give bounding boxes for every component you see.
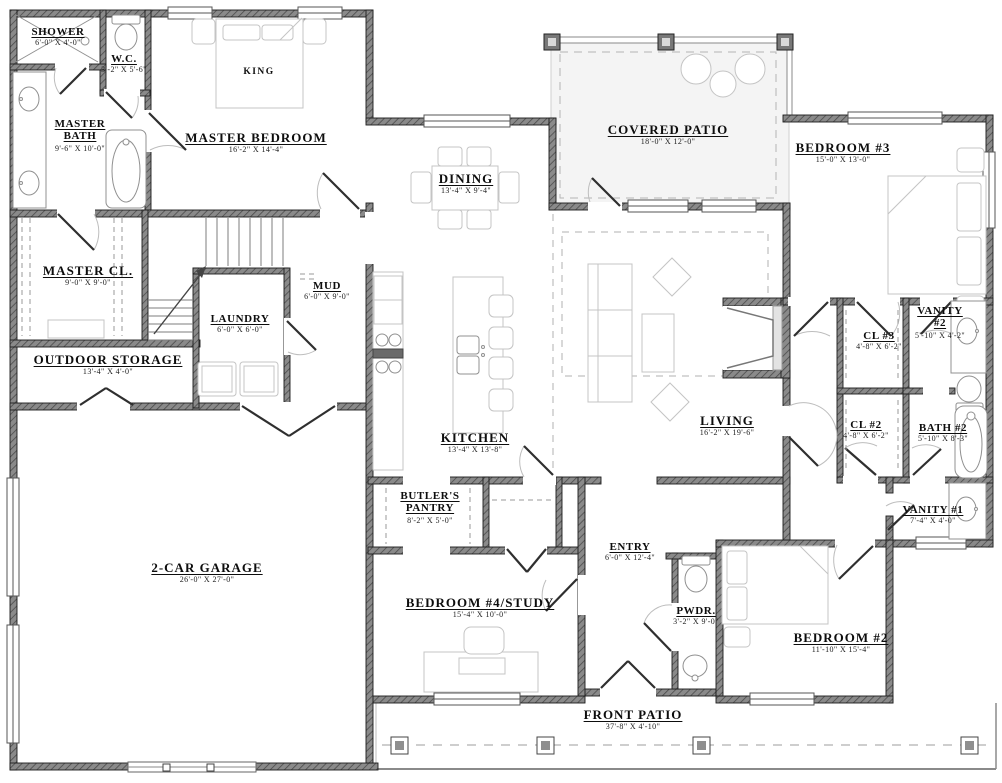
room-label-master-bath: MASTER BATH 9'-6" X 10'-0" (49, 118, 111, 153)
room-label-garage: 2-CAR GARAGE 26'-0" X 27'-0" (151, 561, 262, 585)
wc-toilet (112, 15, 140, 50)
room-label-front-patio: FRONT PATIO 37'-8" X 4'-10" (584, 708, 683, 732)
pwdr-sink (683, 655, 707, 681)
room-label-butlers-pantry: BUTLER'S PANTRY 8'-2" X 5'-0" (397, 490, 463, 525)
room-label-wc: W.C. 3'-2" X 5'-6" (101, 53, 147, 75)
room-label-shower: SHOWER 6'-0" X 4'-0" (31, 26, 84, 48)
master-tub (106, 130, 146, 208)
pwdr-toilet (682, 556, 710, 592)
room-label-covered-patio: COVERED PATIO 18'-0" X 12'-0" (608, 123, 729, 147)
living-furniture (588, 258, 691, 421)
garage-door (128, 762, 256, 772)
laundry-appliances (198, 362, 278, 396)
room-label-pwdr: PWDR. 3'-2" X 9'-0" (673, 605, 719, 627)
king-bed (192, 18, 326, 108)
room-label-bedroom-4: BEDROOM #4/STUDY 15'-4" X 10'-0" (406, 596, 555, 620)
room-label-cl-2: CL #2 4'-8" X 6'-2" (843, 419, 889, 441)
master-closet-island (48, 320, 104, 338)
room-label-master-bedroom: MASTER BEDROOM 16'-2" X 14'-4" (185, 131, 326, 155)
room-label-outdoor-storage: OUTDOOR STORAGE 13'-4" X 4'-0" (34, 353, 183, 377)
room-label-laundry: LAUNDRY 6'-0" X 6'-0" (211, 313, 270, 335)
room-label-vanity-1: VANITY #1 7'-4" X 4'-0" (903, 504, 964, 526)
room-label-vanity-2: VANITY #2 5'-10" X 4'-2" (914, 305, 966, 340)
fireplace (723, 306, 782, 370)
floor-plan-drawing (0, 0, 1002, 783)
floor-plan: SHOWER 6'-0" X 4'-0" W.C. 3'-2" X 5'-6" … (0, 0, 1002, 783)
bedroom4-desk (424, 627, 538, 692)
room-label-bath-2: BATH #2 5'-10" X 8'-3" (918, 422, 968, 444)
king-bed-label: KING (243, 67, 274, 77)
room-label-cl-3: CL #3 4'-8" X 6'-2" (856, 330, 902, 352)
master-vanity (13, 72, 46, 208)
room-label-bedroom-3: BEDROOM #3 15'-0" X 13'-0" (796, 141, 891, 165)
room-label-entry: ENTRY 6'-0" X 12'-4" (605, 541, 655, 563)
room-label-master-cl: MASTER CL. 9'-0" X 9'-0" (43, 264, 133, 288)
bedroom3-bed (888, 148, 986, 320)
cooktop (373, 334, 403, 373)
room-label-living: LIVING 16'-2" X 19'-6" (700, 414, 755, 438)
room-label-bedroom-2: BEDROOM #2 11'-10" X 15'-4" (794, 631, 889, 655)
room-label-mud: MUD 6'-0" X 9'-0" (304, 280, 350, 302)
front-patio-floor (376, 703, 996, 769)
room-label-dining: DINING 13'-4" X 9'-4" (439, 172, 493, 196)
room-label-kitchen: KITCHEN 13'-4" X 13'-8" (441, 431, 509, 455)
